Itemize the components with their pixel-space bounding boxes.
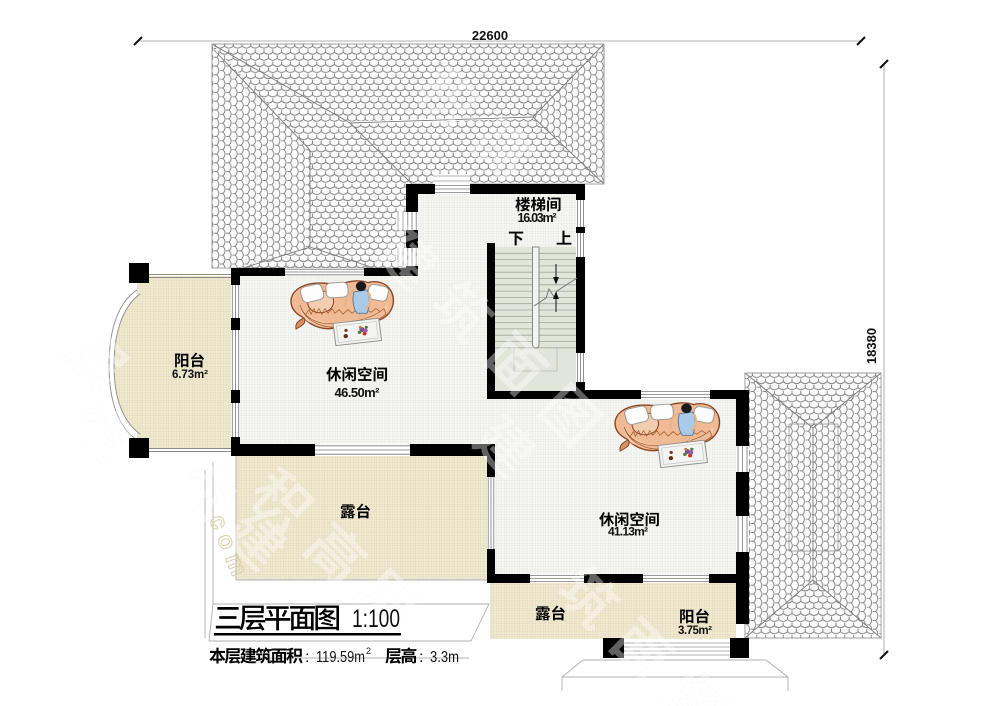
svg-text:46.50m²: 46.50m²: [335, 385, 381, 400]
svg-text:16.03m²: 16.03m²: [518, 211, 557, 225]
svg-text:41.13m²: 41.13m²: [608, 525, 648, 539]
svg-text:18380: 18380: [864, 328, 879, 364]
svg-text:22600: 22600: [472, 28, 508, 43]
svg-text::: :: [419, 649, 423, 666]
svg-text:3.75m²: 3.75m²: [678, 625, 712, 637]
svg-text:2: 2: [366, 646, 371, 656]
svg-text::: :: [305, 649, 309, 666]
svg-text:3.3m: 3.3m: [430, 649, 459, 666]
svg-text:1:100: 1:100: [352, 605, 400, 633]
svg-text:6.73m²: 6.73m²: [172, 369, 208, 381]
svg-text:119.59m: 119.59m: [316, 649, 365, 666]
